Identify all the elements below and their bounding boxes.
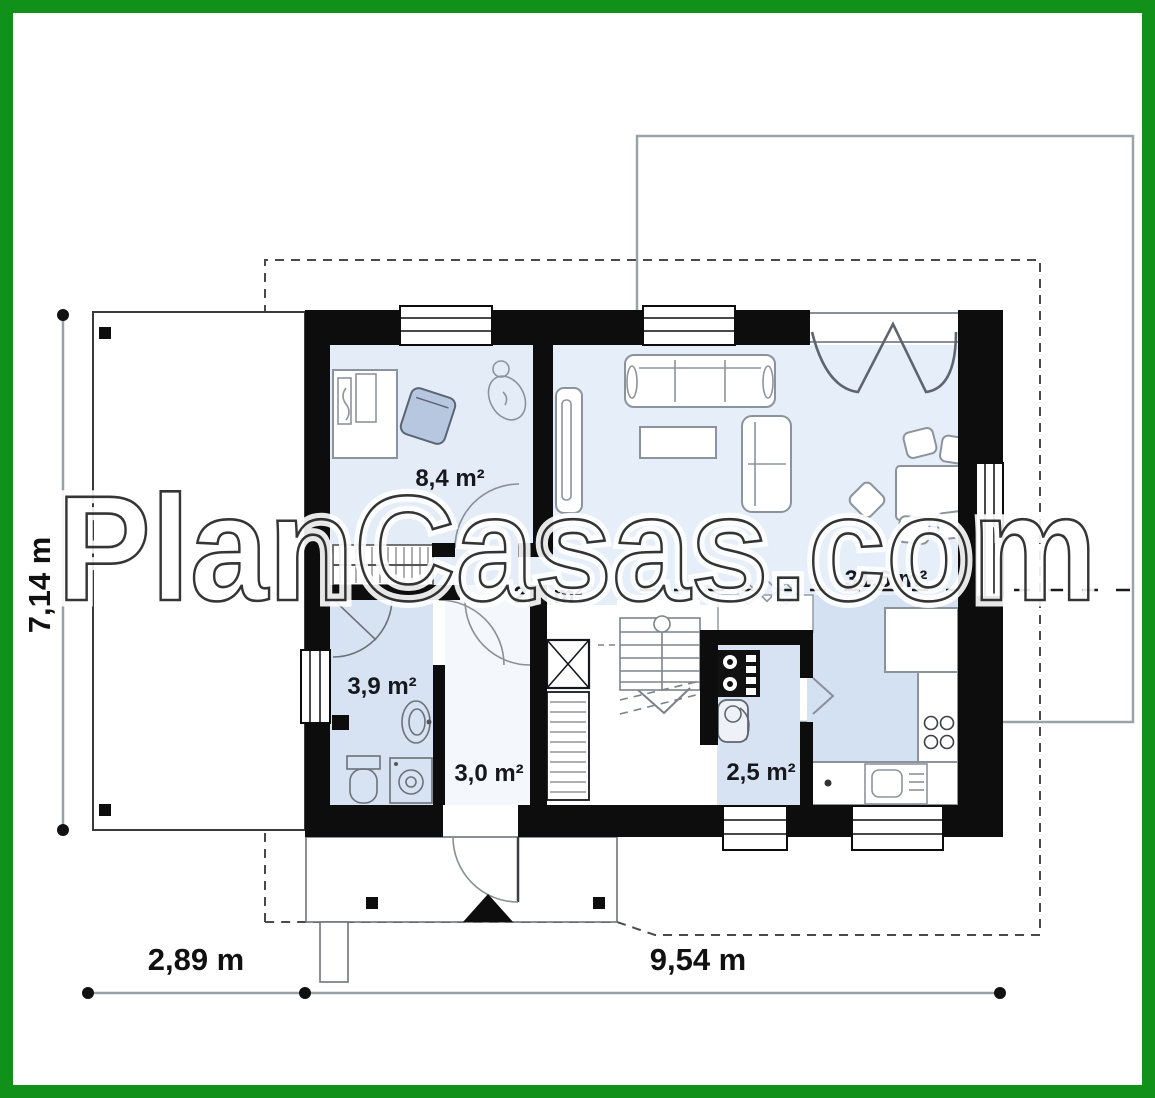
boiler <box>718 700 749 742</box>
watermark: PlanCasas.com PlanCasas.com <box>57 464 1097 632</box>
dimension-height-label: 7,14 m <box>22 537 57 634</box>
pantry-bottom-window <box>723 806 787 850</box>
sofa <box>625 355 775 407</box>
dimension-left-width-label: 2,89 m <box>148 942 245 977</box>
living-window <box>643 306 735 345</box>
kitchen-counter-right <box>918 672 958 762</box>
sink-drain <box>825 780 832 787</box>
bathroom-radiator <box>332 715 349 730</box>
office-window <box>400 306 492 345</box>
bathroom-area-label: 3,9 m² <box>347 673 416 700</box>
dimension-bottom: 2,89 m 9,54 m <box>82 942 1006 999</box>
hall-area-label: 3,0 m² <box>454 760 523 787</box>
bathroom-window <box>301 650 330 723</box>
porch-post <box>593 897 605 909</box>
kitchen-bottom-window <box>852 806 943 850</box>
terrace-post <box>99 327 111 339</box>
porch-post <box>366 897 378 909</box>
hall-storage <box>547 640 589 800</box>
watermark-text: PlanCasas.com <box>57 464 1097 632</box>
entrance-porch <box>306 837 617 982</box>
coffee-table <box>640 427 716 458</box>
terrace-post <box>99 804 111 816</box>
pantry-area-label: 2,5 m² <box>726 759 795 786</box>
floor-plan-canvas: 8,4 m² 2,6 m² 3,9 m² 3,0 m² 2,5 m² 31,6 … <box>0 0 1155 1098</box>
floor-plan-page: 8,4 m² 2,6 m² 3,9 m² 3,0 m² 2,5 m² 31,6 … <box>0 0 1155 1098</box>
dimension-right-width-label: 9,54 m <box>650 942 747 977</box>
